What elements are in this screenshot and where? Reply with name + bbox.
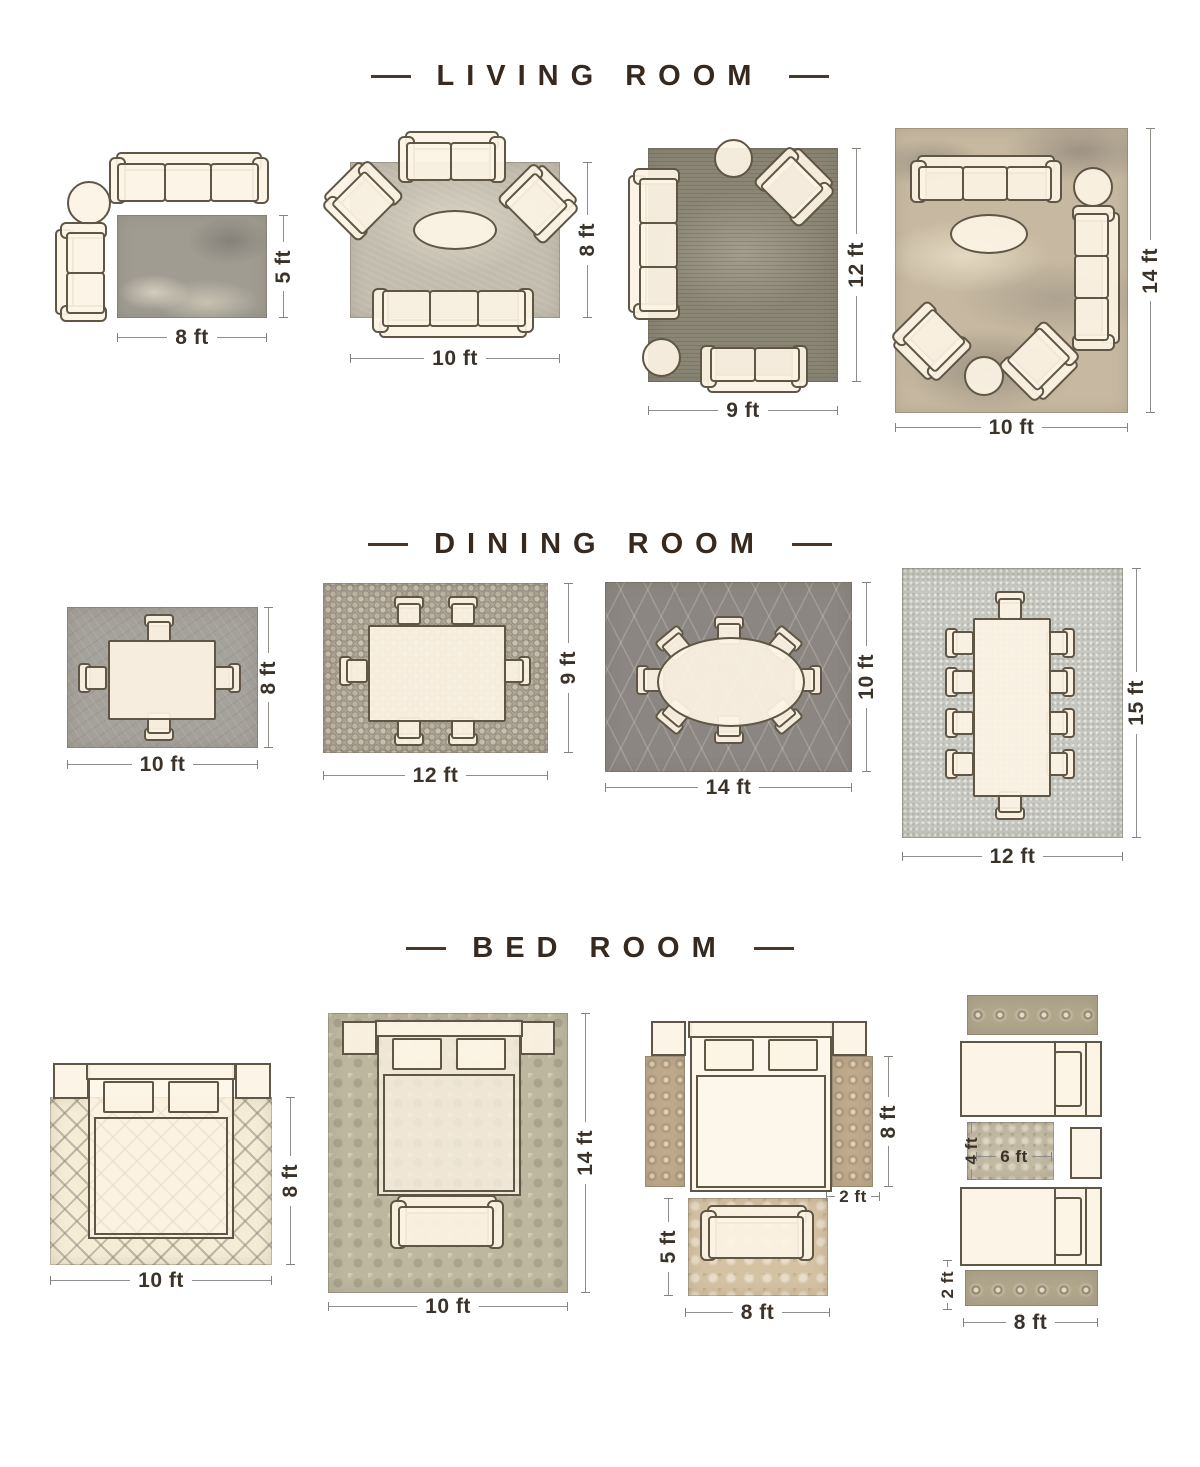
headboard (1085, 1187, 1102, 1266)
foot-rug-height-dimension: 5 ft (655, 1198, 681, 1296)
title-dash-right (754, 947, 794, 950)
blanket (383, 1074, 515, 1192)
bedroom-bench (700, 1205, 814, 1261)
sofa-cushion (1006, 166, 1052, 201)
dimension-label: 10 ft (981, 417, 1043, 438)
sofa-cushion (429, 290, 478, 327)
nightstand (53, 1063, 89, 1099)
blanket (696, 1075, 826, 1188)
section-heading: BED ROOM (472, 932, 728, 965)
dimension-label: 10 ft (130, 1270, 192, 1291)
dimension-label: 8 ft (733, 1302, 783, 1323)
section-heading: LIVING ROOM (437, 60, 764, 93)
pillow (1054, 1051, 1082, 1107)
dining-chair (78, 663, 108, 693)
title-dash-left (368, 543, 408, 546)
sofa-cushions (408, 142, 496, 181)
sofa-cushion (1074, 213, 1109, 257)
dining-table (368, 625, 506, 722)
pillow (168, 1081, 219, 1113)
sofa-cushion (1074, 255, 1109, 299)
chair-seat (85, 666, 107, 690)
section-title-bed-room: BED ROOM (0, 932, 1200, 965)
dimension-label: 9 ft (718, 400, 768, 421)
width-dimension: 8 ft (963, 1310, 1098, 1334)
dimension-label: 15 ft (1126, 672, 1147, 734)
sofa-cushions (710, 347, 798, 382)
sofa-cushions (66, 232, 105, 312)
width-dimension: 10 ft (328, 1294, 568, 1318)
pillow (103, 1081, 154, 1113)
width-dimension: 10 ft (50, 1268, 272, 1292)
sofa-cushion (918, 166, 964, 201)
sofa-cushions (1074, 215, 1109, 341)
runner-height-dimension: 8 ft (875, 1056, 901, 1187)
headboard (688, 1021, 834, 1038)
round-side-table (642, 338, 681, 377)
pillow (1054, 1197, 1082, 1256)
width-dimension: 8 ft (685, 1300, 830, 1324)
sofa-cushions (400, 1206, 494, 1247)
sofa-cushion (639, 266, 678, 312)
oval-dining-table (657, 637, 805, 727)
round-side-table (1073, 167, 1113, 207)
blanket (94, 1117, 228, 1235)
oval-coffee-table (413, 210, 497, 250)
title-dash-left (406, 947, 446, 950)
sofa-cushion (398, 1206, 494, 1247)
pillow (456, 1038, 506, 1070)
runner-rug-right (832, 1056, 873, 1187)
dining-chair (945, 708, 975, 738)
width-dimension: 12 ft (902, 844, 1123, 868)
sofa-cushion (66, 272, 105, 314)
sofa-cushion (477, 290, 526, 327)
dining-chair (945, 628, 975, 658)
sofa-cushion (639, 178, 678, 224)
sofa-cushion (962, 166, 1008, 201)
headboard (86, 1063, 236, 1080)
living-room-rug-8x5 (117, 215, 267, 318)
sofa (910, 155, 1062, 203)
chair-seat (346, 659, 368, 683)
sofa-cushion (164, 163, 213, 202)
title-dash-right (792, 543, 832, 546)
title-dash-right (789, 75, 829, 78)
sofa-cushion (210, 163, 259, 202)
round-side-table (67, 181, 111, 225)
dimension-label: 12 ft (982, 846, 1044, 867)
dimension-label: 12 ft (405, 765, 467, 786)
dimension-label: 8 ft (258, 653, 279, 703)
height-dimension: 15 ft (1123, 568, 1149, 838)
width-dimension: 10 ft (895, 415, 1128, 439)
dimension-label: 14 ft (698, 777, 760, 798)
round-side-table (714, 139, 753, 178)
dimension-label: 6 ft (996, 1148, 1032, 1165)
nightstand (832, 1021, 867, 1056)
height-dimension: 14 ft (572, 1013, 598, 1293)
dining-chair (945, 667, 975, 697)
headboard (1085, 1041, 1102, 1117)
sofa-cushion (406, 142, 452, 181)
dimension-label: 8 ft (280, 1156, 301, 1206)
dining-chair (339, 656, 369, 686)
sofa-cushions (119, 163, 259, 202)
dining-chair (995, 591, 1025, 621)
nightstand (235, 1063, 271, 1099)
sofa-cushions (382, 290, 524, 327)
dining-chair (394, 596, 424, 626)
bed (377, 1020, 521, 1196)
sofa-cushion (710, 347, 756, 382)
chair-seat (952, 631, 974, 655)
dimension-label: 10 ft (856, 646, 877, 708)
chair-seat (952, 670, 974, 694)
sofa-cushion (754, 347, 800, 382)
dining-chair (448, 596, 478, 626)
dimension-label: 5 ft (273, 242, 294, 292)
sofa-cushion (117, 163, 166, 202)
nightstand (651, 1021, 686, 1056)
width-dimension: 10 ft (350, 346, 560, 370)
height-dimension: 8 ft (574, 162, 600, 318)
section-title-living-room: LIVING ROOM (0, 60, 1200, 93)
height-dimension: 12 ft (843, 148, 869, 382)
dimension-label: 8 ft (577, 215, 598, 265)
sofa (628, 168, 680, 320)
sofa-cushion (450, 142, 496, 181)
height-dimension: 14 ft (1137, 128, 1163, 413)
dimension-label: 2 ft (835, 1188, 871, 1205)
section-title-dining-room: DINING ROOM (0, 528, 1200, 561)
dining-table (108, 640, 216, 720)
dimension-label: 14 ft (575, 1122, 596, 1184)
oval-coffee-table (950, 214, 1028, 254)
dimension-label: 9 ft (558, 643, 579, 693)
dimension-label: 10 ft (424, 348, 486, 369)
dining-chair (945, 749, 975, 779)
section-heading: DINING ROOM (434, 528, 766, 561)
sofa-cushion (708, 1216, 804, 1259)
nightstand (1070, 1127, 1102, 1179)
sofa-cushion (639, 222, 678, 268)
pillow (704, 1039, 754, 1071)
width-dimension: 8 ft (117, 325, 267, 349)
sofa-cushions (710, 1216, 804, 1259)
nightstand (520, 1021, 555, 1055)
dining-table (973, 618, 1051, 797)
dimension-label: 10 ft (132, 754, 194, 775)
height-dimension: 8 ft (277, 1097, 303, 1265)
twin-bed (960, 1187, 1102, 1266)
height-dimension: 8 ft (255, 607, 281, 748)
dimension-label: 8 ft (1006, 1312, 1056, 1333)
chair-seat (952, 711, 974, 735)
height-dimension: 10 ft (853, 582, 879, 772)
loveseat (700, 345, 808, 393)
chair-seat (451, 603, 475, 625)
sofa-cushion (382, 290, 431, 327)
dimension-label: 8 ft (167, 327, 217, 348)
rug-size-guide-poster: LIVING ROOM 5 ft 8 ft 8 ft 10 ft 12 ft 9… (0, 0, 1200, 1467)
runner-rug-left (645, 1056, 685, 1187)
height-dimension: 9 ft (555, 583, 581, 753)
chair-seat (952, 752, 974, 776)
chair-seat (998, 598, 1022, 620)
sofa-cushions (920, 166, 1052, 201)
headboard (375, 1020, 523, 1037)
bedroom-bench (390, 1195, 504, 1249)
dimension-label: 8 ft (878, 1097, 899, 1147)
runner-rug-top (967, 995, 1098, 1035)
runner-width-dimension: 2 ft (826, 1186, 880, 1206)
width-dimension: 12 ft (323, 763, 548, 787)
sofa (109, 152, 269, 204)
loveseat (55, 222, 107, 322)
width-dimension: 10 ft (67, 752, 258, 776)
sofa-cushion (66, 232, 105, 274)
pillow (768, 1039, 818, 1071)
dimension-label: 10 ft (417, 1296, 479, 1317)
bed (88, 1063, 234, 1239)
dimension-label: 14 ft (1140, 240, 1161, 302)
sofa-cushions (639, 178, 678, 310)
sofa-cushion (1074, 297, 1109, 341)
dimension-label: 5 ft (658, 1222, 679, 1272)
height-dimension: 5 ft (270, 215, 296, 318)
round-side-table (964, 356, 1004, 396)
nightstand (342, 1021, 377, 1055)
pillow (392, 1038, 442, 1070)
sofa (1072, 205, 1120, 351)
sofa (372, 288, 534, 338)
chair-seat (397, 603, 421, 625)
width-dimension: 14 ft (605, 775, 852, 799)
width-dimension: 9 ft (648, 398, 838, 422)
title-dash-left (371, 75, 411, 78)
dimension-label: 2 ft (939, 1267, 956, 1303)
mid-rug-width-dimension: 6 ft (976, 1146, 1052, 1166)
bed (690, 1021, 832, 1192)
twin-bed (960, 1041, 1102, 1117)
runner-height-dimension: 2 ft (936, 1260, 958, 1310)
dimension-label: 12 ft (846, 234, 867, 296)
runner-rug-bottom (965, 1270, 1098, 1306)
loveseat (398, 131, 506, 183)
